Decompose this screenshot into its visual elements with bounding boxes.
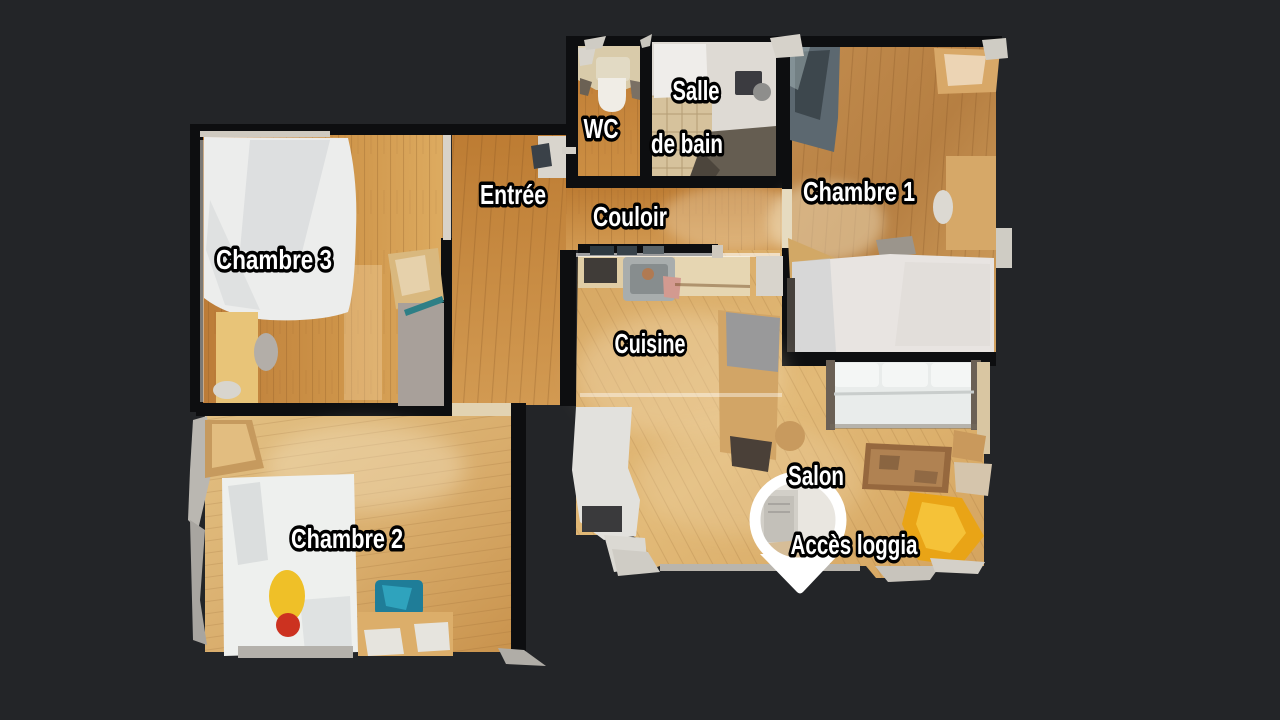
svg-text:Accès loggia: Accès loggia: [791, 529, 918, 560]
svg-text:Couloir: Couloir: [593, 201, 667, 232]
svg-text:Cuisine: Cuisine: [615, 328, 686, 359]
svg-text:Entrée: Entrée: [480, 179, 546, 210]
svg-text:de bain: de bain: [651, 128, 723, 159]
svg-text:Chambre 3: Chambre 3: [216, 244, 332, 275]
svg-text:Chambre 2: Chambre 2: [291, 523, 403, 554]
svg-text:Salle: Salle: [673, 75, 720, 106]
svg-text:Chambre 1: Chambre 1: [803, 176, 915, 207]
svg-text:WC: WC: [584, 113, 619, 144]
svg-text:Salon: Salon: [788, 460, 844, 491]
